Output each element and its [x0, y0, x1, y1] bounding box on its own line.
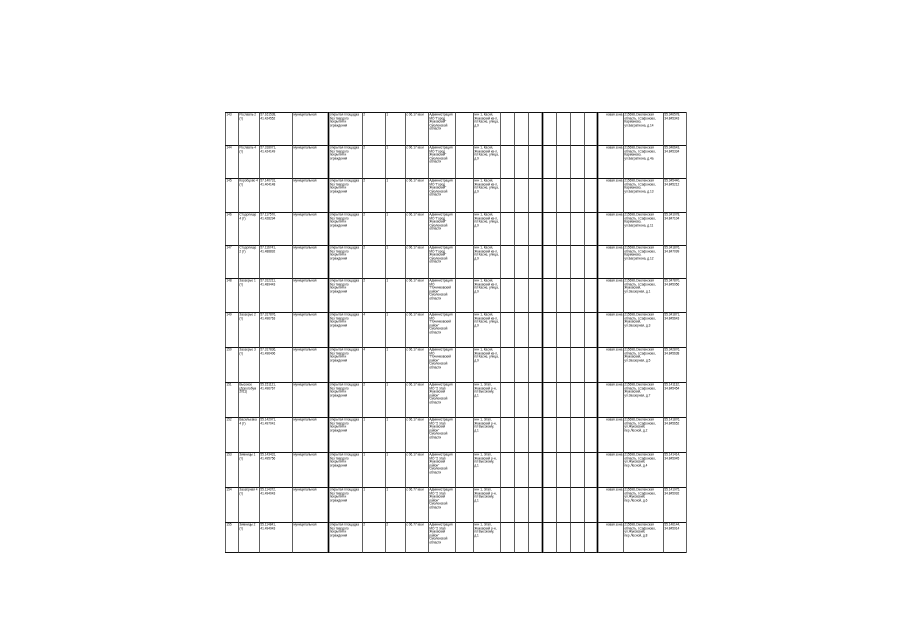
- cell-coordinates: 57.318071, 41.424149: [259, 145, 292, 178]
- cell-name: Стодолище 4 (т): [238, 212, 259, 245]
- cell-num: 144: [225, 145, 238, 178]
- cell-spacer-3: [514, 312, 528, 347]
- cell-count-b: 1: [385, 278, 405, 312]
- cell-location: м-н 1, Касня, Жуковский кв-л, по Касне, …: [473, 312, 500, 347]
- cell-area: с 06.17 кв.м: [405, 312, 428, 347]
- cell-spacer-5: [542, 178, 556, 212]
- cell-num: 154: [225, 487, 238, 522]
- cell-spacer-7: [570, 522, 584, 552]
- cell-zone-status: новая зона: [597, 212, 623, 245]
- cell-coordinates-2: 55.347870, 34.845956: [663, 278, 686, 312]
- cell-location: м-н 1, Касня, Жуковский кв-л, по Касне, …: [473, 278, 500, 312]
- cell-ownership: муниципальная: [292, 522, 328, 552]
- cell-spacer-2: [500, 245, 514, 278]
- cell-description: открытая площадка без твердого покрытия …: [328, 382, 362, 417]
- cell-spacer-3: [514, 522, 528, 552]
- cell-spacer-7: [570, 112, 584, 145]
- cell-address: 215698,Смоленская область, г.Сафоново, К…: [623, 212, 663, 245]
- cell-spacer-8: [584, 417, 597, 452]
- cell-coordinates: 55.151121, 41.496767: [259, 382, 292, 417]
- cell-spacer-4: [528, 245, 542, 278]
- cell-spacer-3: [514, 452, 528, 487]
- cell-location: м-н 1, Этап, Жуковский р-н, по Высокому,…: [473, 487, 500, 522]
- cell-spacer-2: [500, 145, 514, 178]
- cell-spacer-7: [570, 145, 584, 178]
- cell-description: открытая площадка без твердого покрытия …: [328, 487, 362, 522]
- cell-num: 149: [225, 312, 238, 347]
- cell-ownership: муниципальная: [292, 145, 328, 178]
- cell-description: открытая площадка без твердого покрытия …: [328, 312, 362, 347]
- cell-owner: Администрация МО "Город Жуковский" Смоле…: [428, 212, 455, 245]
- registry-sheet: 143Рославль 2 (т)57.161538, 41.424552мун…: [225, 112, 687, 553]
- cell-ownership: муниципальная: [292, 382, 328, 417]
- cell-location: м-н 1, Этап, Жуковский р-н, по Высокому,…: [473, 382, 500, 417]
- cell-description: открытая площадка без твердого покрытия …: [328, 245, 362, 278]
- cell-zone-status: новая зона: [597, 145, 623, 178]
- cell-area: с 06.17 кв.м: [405, 417, 428, 452]
- cell-spacer-8: [584, 452, 597, 487]
- cell-address: 215698,Смоленская область, г.Сафоново, К…: [623, 145, 663, 178]
- cell-name: Заозерье 3 (т): [238, 347, 259, 382]
- cell-name: Коробцово 4 (т): [238, 178, 259, 212]
- cell-spacer-1: [455, 212, 473, 245]
- cell-spacer-8: [584, 145, 597, 178]
- cell-address: 215698,Смоленская область, г.Сафоново, у…: [623, 522, 663, 552]
- cell-zone-status: новая зона: [597, 382, 623, 417]
- cell-name: Высокое (Дорогобуж 2011): [238, 382, 259, 417]
- cell-spacer-6: [556, 347, 570, 382]
- cell-name: Зимницы 2 (т): [238, 522, 259, 552]
- cell-spacer-5: [542, 145, 556, 178]
- cell-count-a: 2: [362, 112, 385, 145]
- cell-description: открытая площадка без твердого покрытия …: [328, 522, 362, 552]
- cell-description: открытая площадка без твердого покрытия …: [328, 452, 362, 487]
- cell-spacer-7: [570, 245, 584, 278]
- cell-coordinates: 57.117570, 41.428294: [259, 212, 292, 245]
- cell-coordinates-2: 55.341078, 34.847104: [663, 212, 686, 245]
- cell-zone-status: новая зона: [597, 522, 623, 552]
- cell-spacer-2: [500, 112, 514, 145]
- cell-ownership: муниципальная: [292, 312, 328, 347]
- cell-spacer-6: [556, 112, 570, 145]
- cell-spacer-7: [570, 178, 584, 212]
- cell-count-b: 1: [385, 487, 405, 522]
- cell-count-b: 1: [385, 245, 405, 278]
- cell-spacer-8: [584, 487, 597, 522]
- cell-address: 215698,Смоленская область, г.Сафоново, у…: [623, 487, 663, 522]
- cell-address: 215698,Смоленская область, г.Сафоново, у…: [623, 452, 663, 487]
- cell-coordinates: 57.312211, 41.489443: [259, 278, 292, 312]
- cell-location: м-н 1, Касня, Жуковский кв-л, по Касне, …: [473, 212, 500, 245]
- cell-spacer-2: [500, 382, 514, 417]
- cell-ownership: муниципальная: [292, 112, 328, 145]
- cell-description: открытая площадка без твердого покрытия …: [328, 178, 362, 212]
- cell-spacer-7: [570, 487, 584, 522]
- cell-coordinates: 57.161538, 41.424552: [259, 112, 292, 145]
- cell-spacer-3: [514, 487, 528, 522]
- cell-ownership: муниципальная: [292, 417, 328, 452]
- cell-count-a: 2: [362, 212, 385, 245]
- cell-spacer-5: [542, 212, 556, 245]
- cell-count-a: 2: [362, 145, 385, 178]
- cell-ownership: муниципальная: [292, 347, 328, 382]
- table-row: 155Зимницы 2 (т)55.114841, 41.494943муни…: [225, 522, 686, 552]
- cell-spacer-4: [528, 487, 542, 522]
- cell-spacer-8: [584, 245, 597, 278]
- cell-ownership: муниципальная: [292, 278, 328, 312]
- cell-num: 155: [225, 522, 238, 552]
- cell-spacer-6: [556, 417, 570, 452]
- cell-address: 215698,Смоленская область, г.Сафоново, у…: [623, 417, 663, 452]
- cell-count-b: 1: [385, 312, 405, 347]
- cell-coordinates-2: 55.346643, 34.845334: [663, 145, 686, 178]
- cell-address: 215698,Смоленская область, г.Сафоново, Ж…: [623, 278, 663, 312]
- cell-zone-status: новая зона: [597, 347, 623, 382]
- cell-num: 152: [225, 417, 238, 452]
- cell-spacer-3: [514, 178, 528, 212]
- cell-spacer-6: [556, 212, 570, 245]
- cell-location: м-н 1, Касня, Жуковский кв-л, по Касне, …: [473, 245, 500, 278]
- cell-description: открытая площадка без твердого покрытия …: [328, 278, 362, 312]
- table-row: 154Заозёрная 4 (т)55.114372, 41.494043му…: [225, 487, 686, 522]
- cell-spacer-6: [556, 312, 570, 347]
- cell-spacer-5: [542, 452, 556, 487]
- cell-count-a: 1: [362, 452, 385, 487]
- cell-spacer-6: [556, 145, 570, 178]
- cell-area: с 06.17 кв.м: [405, 382, 428, 417]
- cell-spacer-6: [556, 522, 570, 552]
- table-row: 144Рославль 4 (т)57.318071, 41.424149мун…: [225, 145, 686, 178]
- cell-coordinates-2: 55.141132, 34.845454: [663, 382, 686, 417]
- cell-owner: Администрация МО "Починковский район" См…: [428, 347, 455, 382]
- cell-spacer-3: [514, 417, 528, 452]
- cell-coordinates-2: 55.346578, 34.845343: [663, 112, 686, 145]
- cell-spacer-7: [570, 417, 584, 452]
- cell-location: м-н 1, Касня, Жуковский кв-л, по Касне, …: [473, 178, 500, 212]
- cell-spacer-5: [542, 347, 556, 382]
- cell-address: 215698,Смоленская область, г.Сафоново, К…: [623, 178, 663, 212]
- cell-spacer-3: [514, 245, 528, 278]
- cell-zone-status: новая зона: [597, 245, 623, 278]
- cell-count-a: 1: [362, 417, 385, 452]
- cell-description: открытая площадка без твердого покрытия …: [328, 112, 362, 145]
- cell-owner: Администрация МО "Город Жуковский" Смоле…: [428, 178, 455, 212]
- cell-area: с 06.17 кв.м: [405, 347, 428, 382]
- table-row: 151Высокое (Дорогобуж 2011)55.151121, 41…: [225, 382, 686, 417]
- cell-count-b: 1: [385, 382, 405, 417]
- cell-owner: Администрация МО "2 этап Жуковский район…: [428, 487, 455, 522]
- cell-coordinates-2: 55.146144, 34.845914: [663, 522, 686, 552]
- table-row: 150Заозерье 3 (т)57.317836, 41.496406мун…: [225, 347, 686, 382]
- cell-address: 215698,Смоленская область, г.Сафоново, Ж…: [623, 312, 663, 347]
- cell-num: 148: [225, 278, 238, 312]
- cell-address: 215698,Смоленская область, г.Сафоново, К…: [623, 245, 663, 278]
- cell-spacer-8: [584, 278, 597, 312]
- cell-name: Заозёрная 4 (т): [238, 487, 259, 522]
- cell-area: с 06.77 кв.м: [405, 487, 428, 522]
- cell-spacer-1: [455, 417, 473, 452]
- cell-num: 143: [225, 112, 238, 145]
- cell-spacer-4: [528, 178, 542, 212]
- cell-count-b: 1: [385, 417, 405, 452]
- cell-spacer-5: [542, 522, 556, 552]
- cell-description: открытая площадка без твердого покрытия …: [328, 212, 362, 245]
- cell-spacer-2: [500, 212, 514, 245]
- cell-spacer-4: [528, 112, 542, 145]
- cell-spacer-8: [584, 347, 597, 382]
- cell-ownership: муниципальная: [292, 178, 328, 212]
- cell-spacer-8: [584, 212, 597, 245]
- cell-location: м-н 1, Касня, Жуковский кв-л, по Касне, …: [473, 347, 500, 382]
- cell-zone-status: новая зона: [597, 312, 623, 347]
- cell-coordinates: 57.140731, 41.404148: [259, 178, 292, 212]
- cell-zone-status: новая зона: [597, 452, 623, 487]
- cell-spacer-7: [570, 382, 584, 417]
- cell-count-a: 4: [362, 312, 385, 347]
- cell-owner: Администрация МО "Починковский район" См…: [428, 278, 455, 312]
- cell-coordinates: 55.114841, 41.494943: [259, 522, 292, 552]
- cell-coordinates-2: 55.141876, 34.845652: [663, 417, 686, 452]
- cell-spacer-1: [455, 112, 473, 145]
- cell-spacer-5: [542, 382, 556, 417]
- cell-coordinates: 57.116741, 41.488892: [259, 245, 292, 278]
- cell-coordinates: 55.142971, 41.497041: [259, 417, 292, 452]
- cell-coordinates-2: 55.342876, 34.845638: [663, 347, 686, 382]
- cell-spacer-1: [455, 178, 473, 212]
- cell-spacer-5: [542, 487, 556, 522]
- cell-name: Заозерье 2 (т): [238, 312, 259, 347]
- cell-ownership: муниципальная: [292, 245, 328, 278]
- cell-spacer-4: [528, 347, 542, 382]
- cell-spacer-6: [556, 245, 570, 278]
- cell-spacer-8: [584, 382, 597, 417]
- cell-spacer-8: [584, 522, 597, 552]
- cell-spacer-8: [584, 312, 597, 347]
- cell-location: м-н 1, Этап, Жуковский р-н, по Высокому,…: [473, 522, 500, 552]
- cell-spacer-8: [584, 112, 597, 145]
- cell-name: Заозерье 1 (т): [238, 278, 259, 312]
- cell-num: 153: [225, 452, 238, 487]
- table-row: 153Зимницы 1 (т)55.143431, 41.495756муни…: [225, 452, 686, 487]
- cell-spacer-3: [514, 145, 528, 178]
- cell-spacer-6: [556, 452, 570, 487]
- cell-description: открытая площадка без твердого покрытия …: [328, 145, 362, 178]
- cell-count-b: 1: [385, 178, 405, 212]
- cell-count-b: 1: [385, 347, 405, 382]
- cell-spacer-1: [455, 312, 473, 347]
- cell-area: с 06.17 кв.м: [405, 278, 428, 312]
- cell-owner: Администрация МО "2 этап Жуковский район…: [428, 417, 455, 452]
- cell-count-a: 2: [362, 382, 385, 417]
- cell-spacer-4: [528, 522, 542, 552]
- cell-spacer-2: [500, 417, 514, 452]
- cell-spacer-1: [455, 347, 473, 382]
- cell-coordinates: 55.114372, 41.494043: [259, 487, 292, 522]
- registry-table: 143Рославль 2 (т)57.161538, 41.424552мун…: [225, 112, 687, 553]
- cell-area: с 06.17 кв.м: [405, 145, 428, 178]
- cell-coordinates-2: 55.341871, 34.845643: [663, 312, 686, 347]
- cell-name: Зимницы 1 (т): [238, 452, 259, 487]
- cell-spacer-5: [542, 278, 556, 312]
- cell-coordinates: 57.317876, 41.496763: [259, 312, 292, 347]
- cell-name: Стодолище 2 (т): [238, 245, 259, 278]
- cell-spacer-6: [556, 382, 570, 417]
- cell-count-a: 1: [362, 487, 385, 522]
- table-row: 149Заозерье 2 (т)57.317876, 41.496763мун…: [225, 312, 686, 347]
- cell-location: м-н 1, Этап, Жуковский р-н, по Высокому,…: [473, 417, 500, 452]
- cell-owner: Администрация МО "2 этап Жуковский район…: [428, 452, 455, 487]
- cell-count-a: 2: [362, 178, 385, 212]
- cell-count-b: 1: [385, 145, 405, 178]
- cell-spacer-2: [500, 347, 514, 382]
- cell-owner: Администрация МО "2 этап Жуковский район…: [428, 522, 455, 552]
- cell-spacer-4: [528, 145, 542, 178]
- cell-spacer-5: [542, 312, 556, 347]
- cell-coordinates: 57.317836, 41.496406: [259, 347, 292, 382]
- cell-spacer-4: [528, 212, 542, 245]
- cell-spacer-1: [455, 278, 473, 312]
- cell-area: с 06.17 кв.м: [405, 112, 428, 145]
- cell-count-b: 1: [385, 112, 405, 145]
- cell-count-b: 1: [385, 212, 405, 245]
- cell-spacer-7: [570, 312, 584, 347]
- cell-name: Рославль 2 (т): [238, 112, 259, 145]
- cell-area: с 06.17 кв.м: [405, 452, 428, 487]
- cell-spacer-2: [500, 522, 514, 552]
- cell-area: с 06.17 кв.м: [405, 212, 428, 245]
- cell-spacer-2: [500, 278, 514, 312]
- cell-address: 215698,Смоленская область, г.Сафоново, Ж…: [623, 382, 663, 417]
- cell-spacer-4: [528, 452, 542, 487]
- table-row: 148Заозерье 1 (т)57.312211, 41.489443мун…: [225, 278, 686, 312]
- cell-zone-status: новая зона: [597, 417, 623, 452]
- cell-spacer-1: [455, 245, 473, 278]
- document-page: { "page": { "background_color": "#ffffff…: [0, 0, 905, 640]
- cell-spacer-7: [570, 278, 584, 312]
- table-row: 147Стодолище 2 (т)57.116741, 41.488892му…: [225, 245, 686, 278]
- cell-zone-status: новая зона: [597, 487, 623, 522]
- cell-area: с 06.77 кв.м: [405, 522, 428, 552]
- cell-spacer-1: [455, 382, 473, 417]
- cell-spacer-4: [528, 417, 542, 452]
- cell-ownership: муниципальная: [292, 487, 328, 522]
- cell-num: 146: [225, 212, 238, 245]
- cell-owner: Администрация МО "Город Жуковский" Смоле…: [428, 112, 455, 145]
- table-row: 152Васильевка 4 (т)55.142971, 41.497041м…: [225, 417, 686, 452]
- cell-description: открытая площадка без твердого покрытия …: [328, 347, 362, 382]
- table-row: 143Рославль 2 (т)57.161538, 41.424552мун…: [225, 112, 686, 145]
- cell-coordinates: 55.143431, 41.495756: [259, 452, 292, 487]
- cell-spacer-8: [584, 178, 597, 212]
- cell-count-b: 1: [385, 452, 405, 487]
- cell-owner: Администрация МО "Город Жуковский" Смоле…: [428, 245, 455, 278]
- cell-coordinates-2: 55.141414, 34.845945: [663, 452, 686, 487]
- cell-ownership: муниципальная: [292, 212, 328, 245]
- cell-zone-status: новая зона: [597, 178, 623, 212]
- cell-coordinates-2: 55.141975, 34.845992: [663, 487, 686, 522]
- cell-count-a: 4: [362, 347, 385, 382]
- cell-count-a: 2: [362, 245, 385, 278]
- cell-area: с 06.17 кв.м: [405, 178, 428, 212]
- cell-spacer-1: [455, 522, 473, 552]
- cell-spacer-1: [455, 452, 473, 487]
- cell-spacer-3: [514, 112, 528, 145]
- table-row: 145Коробцово 4 (т)57.140731, 41.404148му…: [225, 178, 686, 212]
- cell-spacer-2: [500, 452, 514, 487]
- cell-location: м-н 1, Касня, Жуковский кв-л, по Касне, …: [473, 112, 500, 145]
- registry-table-body: 143Рославль 2 (т)57.161538, 41.424552мун…: [225, 112, 686, 552]
- cell-coordinates-2: 55.345440, 34.845212: [663, 178, 686, 212]
- cell-spacer-5: [542, 245, 556, 278]
- cell-area: с 06.17 кв.м: [405, 245, 428, 278]
- cell-owner: Администрация МО "Город Жуковский" Смоле…: [428, 145, 455, 178]
- cell-spacer-4: [528, 312, 542, 347]
- cell-zone-status: новая зона: [597, 112, 623, 145]
- cell-owner: Администрация МО "Починковский район" См…: [428, 312, 455, 347]
- cell-spacer-3: [514, 278, 528, 312]
- cell-spacer-1: [455, 145, 473, 178]
- cell-spacer-3: [514, 382, 528, 417]
- cell-description: открытая площадка без твердого покрытия …: [328, 417, 362, 452]
- cell-spacer-6: [556, 487, 570, 522]
- table-row: 146Стодолище 4 (т)57.117570, 41.428294му…: [225, 212, 686, 245]
- cell-address: 215698,Смоленская область, г.Сафоново, Ж…: [623, 347, 663, 382]
- cell-spacer-7: [570, 452, 584, 487]
- cell-zone-status: новая зона: [597, 278, 623, 312]
- cell-spacer-1: [455, 487, 473, 522]
- cell-spacer-4: [528, 278, 542, 312]
- cell-spacer-2: [500, 178, 514, 212]
- cell-spacer-2: [500, 312, 514, 347]
- cell-spacer-5: [542, 417, 556, 452]
- cell-coordinates-2: 55.341876, 34.847099: [663, 245, 686, 278]
- cell-name: Рославль 4 (т): [238, 145, 259, 178]
- cell-spacer-7: [570, 212, 584, 245]
- cell-count-b: 2: [385, 522, 405, 552]
- cell-count-a: 2: [362, 522, 385, 552]
- cell-ownership: муниципальная: [292, 452, 328, 487]
- cell-name: Васильевка 4 (т): [238, 417, 259, 452]
- cell-spacer-6: [556, 278, 570, 312]
- cell-spacer-7: [570, 347, 584, 382]
- cell-location: м-н 1, Касня, Жуковский кв-л, по Касне, …: [473, 145, 500, 178]
- cell-spacer-3: [514, 212, 528, 245]
- cell-owner: Администрация МО "2 этап Жуковский район…: [428, 382, 455, 417]
- cell-spacer-3: [514, 347, 528, 382]
- cell-num: 147: [225, 245, 238, 278]
- cell-spacer-2: [500, 487, 514, 522]
- cell-num: 151: [225, 382, 238, 417]
- cell-num: 145: [225, 178, 238, 212]
- cell-spacer-5: [542, 112, 556, 145]
- cell-location: м-н 1, Этап, Жуковский р-н, по Высокому,…: [473, 452, 500, 487]
- cell-address: 215698,Смоленская область, г.Сафоново, К…: [623, 112, 663, 145]
- cell-spacer-4: [528, 382, 542, 417]
- cell-num: 150: [225, 347, 238, 382]
- cell-spacer-6: [556, 178, 570, 212]
- cell-count-a: 2: [362, 278, 385, 312]
